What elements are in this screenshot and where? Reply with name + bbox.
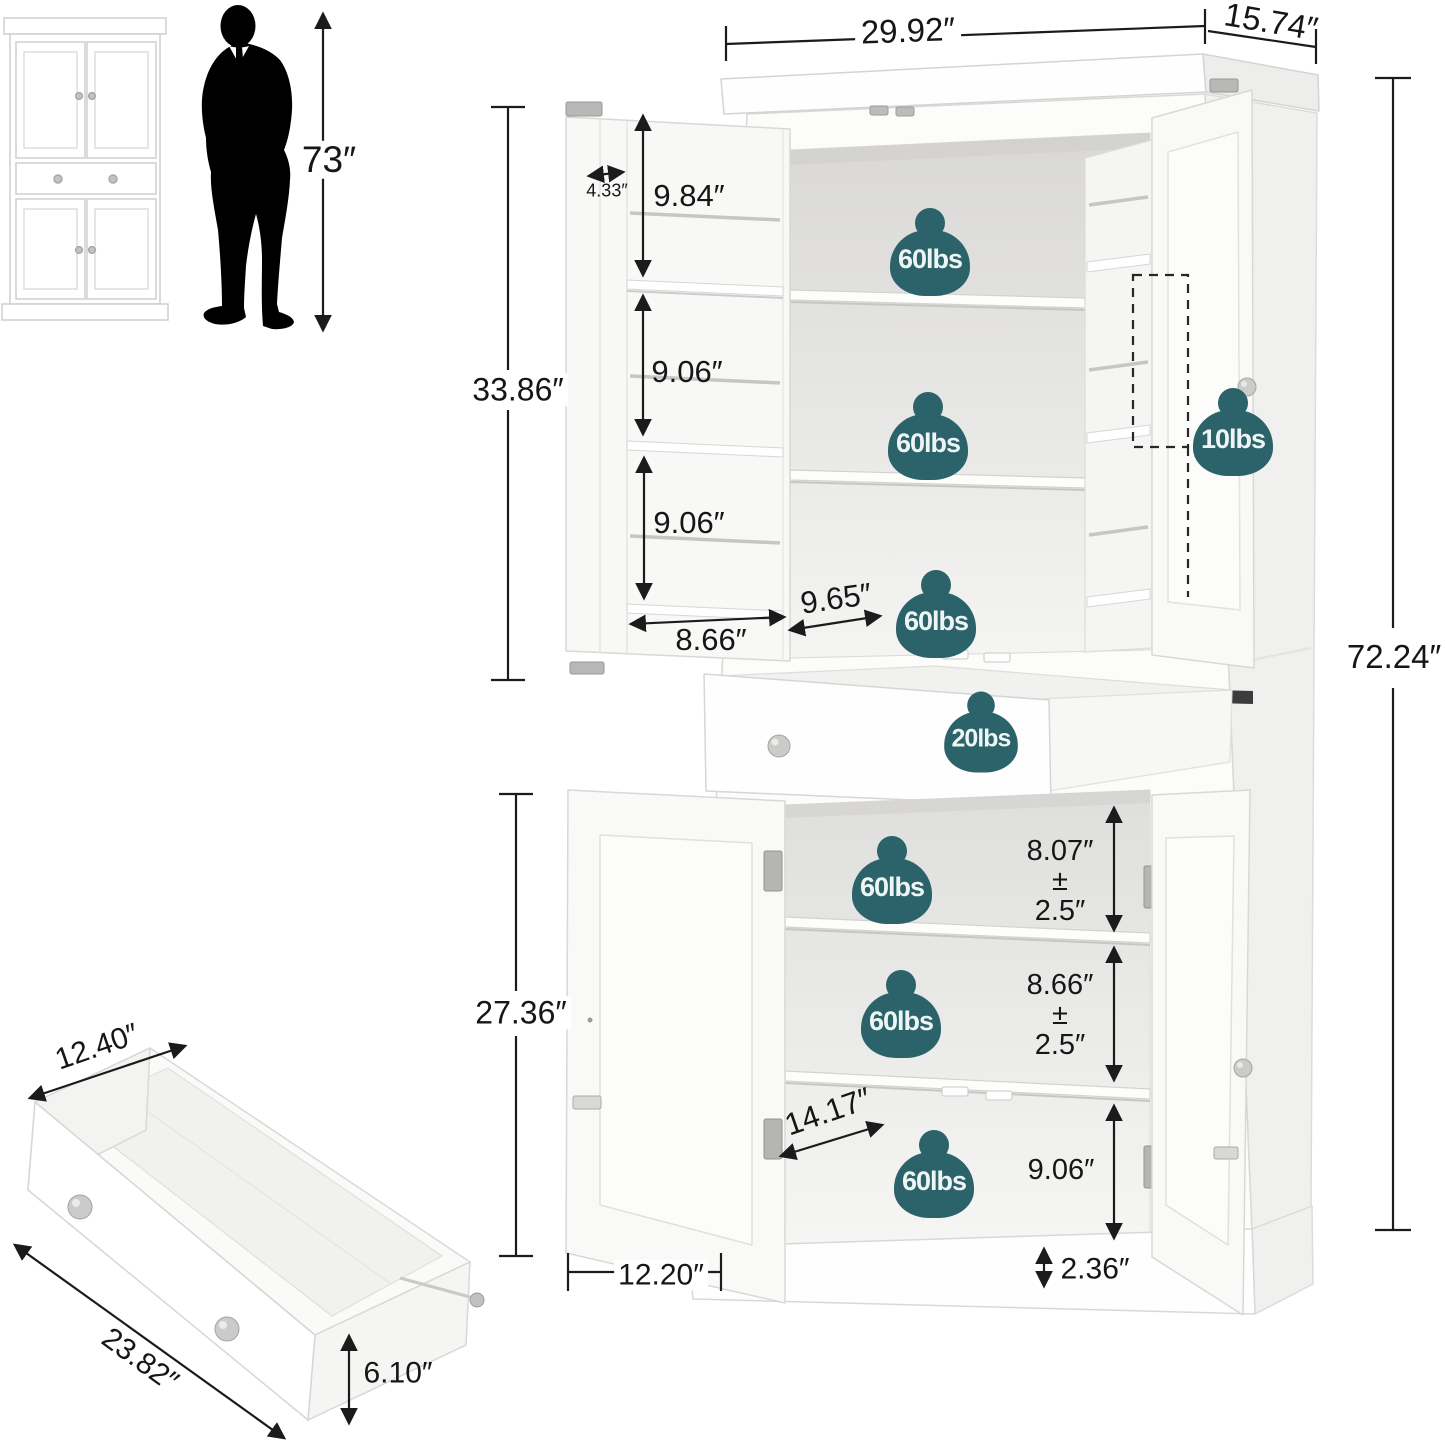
capacity-label: 60lbs xyxy=(861,1006,941,1037)
dim-rack-opening-3: 9.06″ xyxy=(653,507,724,539)
dim-lower-gap-1-value: 8.07″ xyxy=(1027,836,1094,866)
capacity-label: 10lbs xyxy=(1193,424,1273,455)
product-dimension-diagram: 73″ 29.92″ 15.74″ 72.24″ 33.86″ 4.33″ 9.… xyxy=(0,0,1445,1450)
dim-lower-gap-1: 8.07″ ± 2.5″ xyxy=(1027,836,1094,926)
dim-lower-gap-3: 9.06″ xyxy=(1028,1155,1095,1185)
door-hinge xyxy=(566,102,602,116)
capacity-label: 60lbs xyxy=(894,1166,974,1197)
man-silhouette xyxy=(202,5,294,329)
lower-right-door xyxy=(1152,790,1252,1315)
door-latch xyxy=(1214,1147,1238,1159)
door-hinge xyxy=(764,851,782,891)
capacity-badge-door-rack: 10lbs xyxy=(1193,388,1273,476)
capacity-badge-lower-shelf-1: 60lbs xyxy=(852,836,932,924)
diagram-artwork xyxy=(0,0,1445,1450)
dim-overall-width: 29.92″ xyxy=(854,12,962,50)
dim-door-rack-width: 8.66″ xyxy=(675,624,746,656)
dim-rack-opening-1: 9.84″ xyxy=(653,180,724,212)
dim-lower-gap-2-tol: 2.5″ xyxy=(1027,1030,1094,1060)
door-hinge xyxy=(570,662,604,674)
lower-left-door xyxy=(566,790,785,1303)
drawer-glide xyxy=(470,1293,484,1307)
drawer-knob xyxy=(215,1317,239,1341)
capacity-label: 60lbs xyxy=(896,606,976,637)
door-hinge xyxy=(1210,79,1238,92)
dim-drawer-height: 6.10″ xyxy=(363,1357,432,1388)
capacity-label: 60lbs xyxy=(890,244,970,275)
right-door-rack xyxy=(1085,140,1152,652)
door-knob xyxy=(1234,1059,1252,1077)
dim-door-rack-depth: 4.33″ xyxy=(586,182,627,201)
thumbnail-cabinet xyxy=(2,18,168,320)
dim-lower-section-height: 27.36″ xyxy=(470,996,571,1029)
dim-lower-gap-1-pm: ± xyxy=(1027,866,1094,896)
capacity-label: 60lbs xyxy=(888,428,968,459)
drawer-knob xyxy=(68,1195,92,1219)
dim-lower-gap-2: 8.66″ ± 2.5″ xyxy=(1027,970,1094,1060)
capacity-badge-upper-shelf-3: 60lbs xyxy=(896,570,976,658)
door-latch xyxy=(573,1096,601,1109)
dim-overall-height: 72.24″ xyxy=(1345,640,1443,674)
dim-rack-opening-2: 9.06″ xyxy=(651,356,722,388)
dim-lower-gap-2-pm: ± xyxy=(1027,1000,1094,1030)
capacity-badge-drawer: 20lbs xyxy=(944,692,1018,773)
capacity-badge-lower-shelf-2: 60lbs xyxy=(861,970,941,1058)
capacity-badge-lower-shelf-3: 60lbs xyxy=(894,1130,974,1218)
dim-lower-door-width: 12.20″ xyxy=(614,1259,708,1290)
drawer-knob xyxy=(768,735,790,757)
capacity-label: 60lbs xyxy=(852,872,932,903)
dim-person-height: 73″ xyxy=(299,141,359,179)
door-hinge xyxy=(764,1119,782,1159)
dim-upper-section-height: 33.86″ xyxy=(467,373,568,406)
dim-lower-gap-1-tol: 2.5″ xyxy=(1027,896,1094,926)
dim-base-height: 2.36″ xyxy=(1060,1253,1129,1284)
capacity-badge-upper-shelf-2: 60lbs xyxy=(888,392,968,480)
upper-right-door xyxy=(1152,79,1256,668)
capacity-label: 20lbs xyxy=(944,725,1018,754)
dim-lower-gap-2-value: 8.66″ xyxy=(1027,970,1094,1000)
capacity-badge-upper-shelf-1: 60lbs xyxy=(890,208,970,296)
